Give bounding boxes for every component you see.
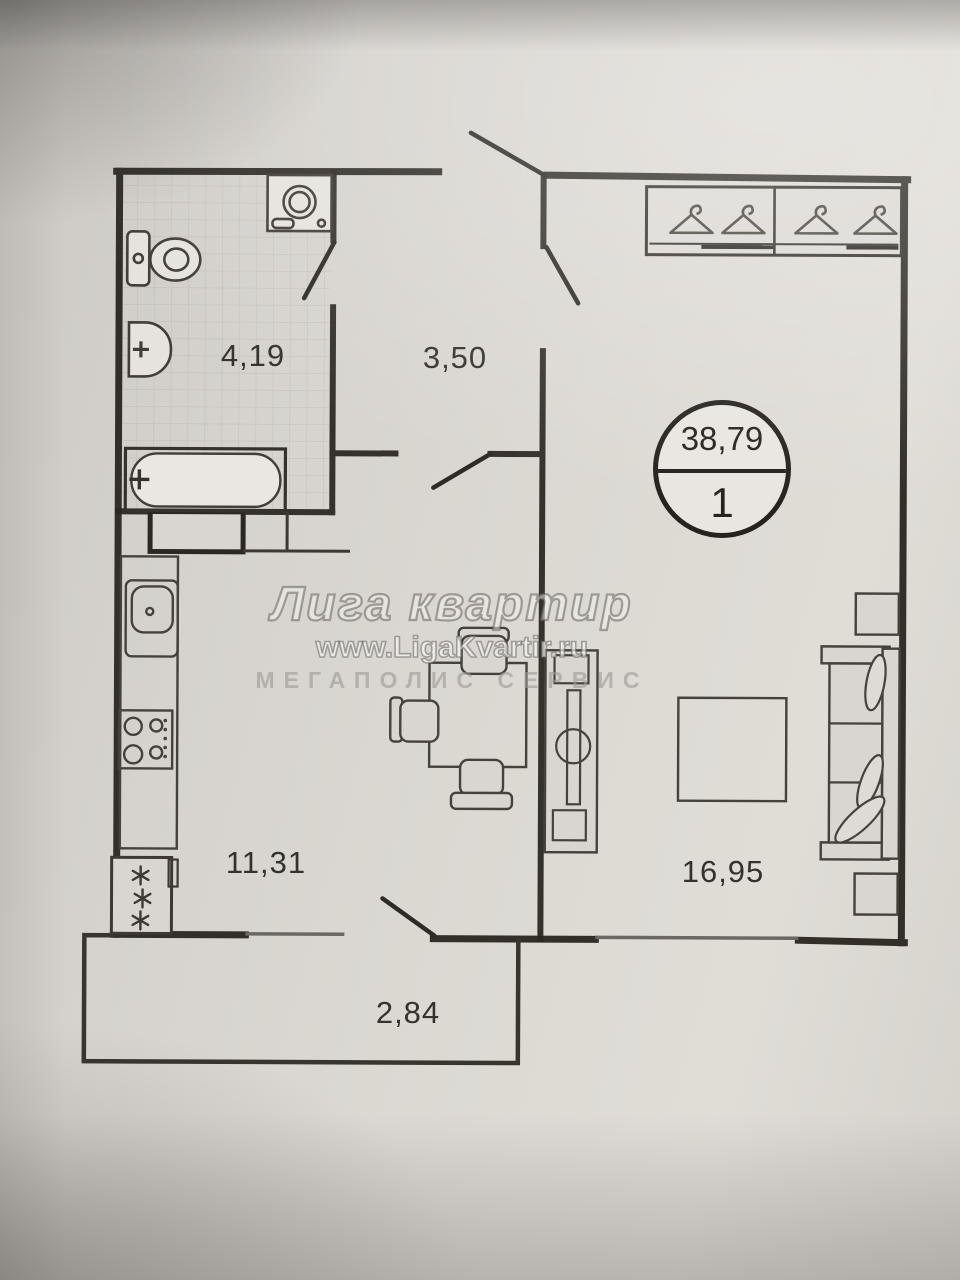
kitchen-door-swing — [433, 454, 490, 488]
living-room-window — [595, 937, 798, 938]
chair-back — [451, 793, 512, 809]
living-room-area-label: 16,95 — [682, 854, 765, 890]
washing-machine-icon — [267, 175, 331, 231]
area-badge: 38,79 1 — [653, 400, 791, 538]
wash-basin-icon — [129, 322, 171, 376]
balcony-door-swing — [382, 898, 434, 935]
fridge-icon — [111, 857, 177, 933]
floorplan-drawing — [0, 0, 960, 1280]
bathtub-icon — [125, 448, 285, 511]
tv-stand — [545, 650, 598, 852]
balcony-outline — [84, 935, 519, 1063]
kitchen-sink-icon — [126, 580, 178, 656]
vent-shaft — [150, 511, 350, 552]
balcony-area-label: 2,84 — [376, 995, 440, 1031]
entrance-door-swing — [471, 133, 543, 174]
chairs — [390, 627, 513, 809]
chair-seat — [462, 636, 507, 674]
stove-icon — [119, 710, 172, 768]
sofa — [821, 646, 900, 859]
bathroom-area-label: 4,19 — [221, 338, 285, 374]
side-table — [856, 594, 899, 635]
chair-seat — [460, 760, 503, 795]
side-table — [854, 874, 897, 915]
kitchen-counter — [120, 556, 178, 848]
kitchen-area-label: 11,31 — [226, 845, 306, 881]
wardrobe — [646, 187, 901, 256]
coffee-table — [678, 698, 786, 801]
chair-seat — [400, 701, 438, 742]
hallway-area-label: 3,50 — [423, 340, 487, 376]
living-room-door-swing — [546, 247, 578, 303]
floorplan-photo: 4,19 3,50 11,31 16,95 2,84 38,79 1 Лига … — [0, 0, 960, 1280]
dining-table — [429, 663, 526, 767]
door-swings — [301, 132, 579, 936]
